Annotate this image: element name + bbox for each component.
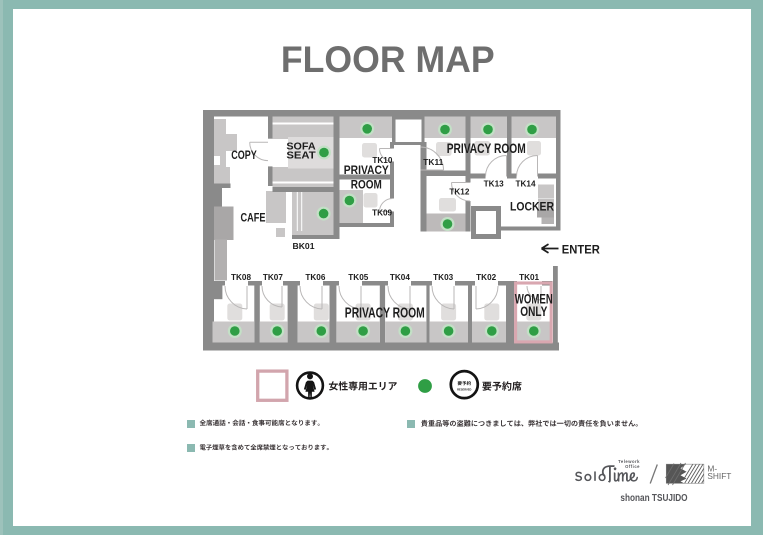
svg-text:COPY: COPY — [231, 150, 257, 162]
svg-text:ROOM: ROOM — [351, 178, 382, 192]
svg-text:TK08: TK08 — [231, 273, 252, 282]
svg-text:TK12: TK12 — [449, 188, 470, 197]
svg-text:CAFE: CAFE — [241, 213, 266, 225]
svg-text:BK01: BK01 — [293, 242, 316, 251]
svg-text:TK11: TK11 — [423, 158, 444, 167]
svg-text:PRIVACY ROOM: PRIVACY ROOM — [447, 141, 526, 156]
svg-text:shonan TSUJIDO: shonan TSUJIDO — [620, 493, 687, 504]
svg-text:Office: Office — [625, 464, 640, 469]
svg-text:TK03: TK03 — [433, 273, 454, 282]
svg-text:SHIFT: SHIFT — [707, 471, 731, 481]
svg-text:TK14: TK14 — [516, 180, 537, 189]
svg-text:TK06: TK06 — [305, 273, 326, 282]
svg-text:TK04: TK04 — [390, 273, 411, 282]
svg-text:TK13: TK13 — [484, 180, 505, 189]
svg-text:PRIVACY: PRIVACY — [344, 163, 390, 177]
svg-text:TK07: TK07 — [263, 273, 284, 282]
svg-text:LOCKER: LOCKER — [510, 200, 555, 213]
svg-text:RESERVED: RESERVED — [457, 388, 471, 392]
svg-text:FLOOR MAP: FLOOR MAP — [281, 39, 495, 80]
svg-text:TK01: TK01 — [519, 273, 540, 282]
svg-text:SEAT: SEAT — [286, 151, 315, 162]
svg-text:ENTER: ENTER — [562, 243, 601, 256]
svg-text:TK02: TK02 — [476, 273, 497, 282]
svg-text:PRIVACY ROOM: PRIVACY ROOM — [345, 306, 425, 322]
svg-text:ONLY: ONLY — [520, 304, 547, 319]
svg-text:TK09: TK09 — [372, 209, 393, 218]
svg-text:TK05: TK05 — [348, 273, 369, 282]
